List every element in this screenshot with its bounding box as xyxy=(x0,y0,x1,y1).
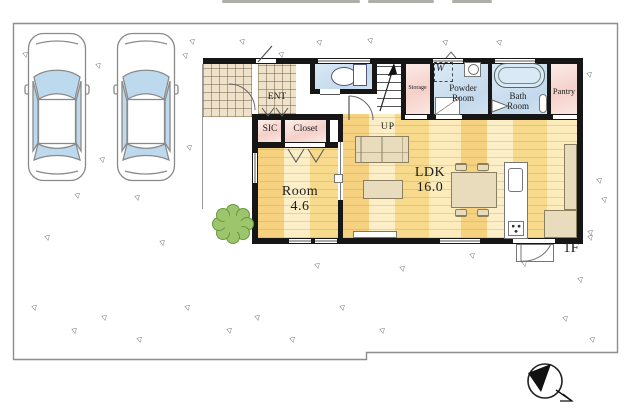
powder-door xyxy=(436,115,462,119)
stair-tread xyxy=(377,74,402,75)
sic-label: SIC xyxy=(258,124,282,134)
dining-chair xyxy=(477,209,489,217)
stair-tread xyxy=(377,90,402,91)
grass-mark: ▽ xyxy=(314,263,321,271)
grass-mark: ▽ xyxy=(44,235,51,243)
pantry-door xyxy=(553,115,577,119)
back-door xyxy=(516,244,554,262)
grass-mark: ▽ xyxy=(586,72,593,80)
entrance-floor xyxy=(258,64,296,114)
grass-mark: ▽ xyxy=(159,240,166,248)
room-window-1 xyxy=(289,239,311,243)
storage-label: Storage xyxy=(400,85,435,92)
up-label: UP xyxy=(373,122,403,132)
room-name: Room xyxy=(275,184,325,199)
grass-mark: ▽ xyxy=(71,328,78,336)
stairs-wall-left xyxy=(372,58,377,94)
ent-label: ENT xyxy=(259,92,295,102)
grass-mark: ▽ xyxy=(496,40,503,48)
powder-sink-basin xyxy=(468,64,479,75)
closet-opening xyxy=(285,143,325,147)
grass-mark: ▽ xyxy=(601,197,608,205)
kitchen-stove xyxy=(508,221,524,236)
ldk-name: LDK xyxy=(405,165,455,180)
ldk-back-door-opening xyxy=(513,239,555,243)
dining-chair xyxy=(455,163,467,171)
grass-mark: ▽ xyxy=(186,145,193,153)
grass-mark: ▽ xyxy=(399,266,406,274)
grass-mark: ▽ xyxy=(134,195,141,203)
grass-mark: ▽ xyxy=(101,315,108,323)
entrance-door-opening xyxy=(256,59,276,63)
grass-mark: ▽ xyxy=(367,38,374,46)
cropped-title-fragment xyxy=(368,0,434,3)
exterior-wall-right xyxy=(577,58,583,244)
room-size: 4.6 xyxy=(275,199,325,214)
pantry-label: Pantry xyxy=(546,87,582,96)
stair-tread xyxy=(377,66,402,67)
kitchen-sink xyxy=(508,168,523,192)
sliding-door-handle xyxy=(334,174,343,183)
grass-mark: ▽ xyxy=(587,235,594,243)
floor-plan-canvas: ▽▽▽▽▽▽▽▽▽▽▽▽▽▽▽▽▽▽▽▽▽▽▽▽▽▽▽▽▽▽▽▽▽▽▽▽▽▽▽▽ xyxy=(0,0,631,409)
storage-door xyxy=(405,115,427,119)
grass-mark: ▽ xyxy=(95,63,102,71)
car-1 xyxy=(24,31,90,183)
grass-mark: ▽ xyxy=(189,39,196,47)
floor-label: 1F xyxy=(556,240,586,257)
grass-mark: ▽ xyxy=(587,230,594,238)
grass-mark: ▽ xyxy=(379,328,386,336)
grass-mark: ▽ xyxy=(136,337,143,345)
grass-mark: ▽ xyxy=(182,53,189,61)
bathtub xyxy=(494,63,545,88)
stair-tread xyxy=(377,106,402,107)
grass-mark: ▽ xyxy=(316,40,323,48)
powder-room-label: Powder Room xyxy=(441,84,485,104)
room-ldk-sliding-door xyxy=(338,142,343,200)
stair-tread xyxy=(377,82,402,83)
ldk-label: LDK 16.0 xyxy=(405,165,455,196)
grass-mark: ▽ xyxy=(74,193,81,201)
room-window-2 xyxy=(315,239,337,243)
compass-icon xyxy=(528,364,572,401)
bath-counter xyxy=(539,94,547,113)
grass-mark: ▽ xyxy=(562,316,569,324)
grass-mark: ▽ xyxy=(442,40,449,48)
grass-mark: ▽ xyxy=(289,337,296,345)
porch-tile-floor xyxy=(203,64,252,117)
dining-chair xyxy=(477,163,489,171)
coffee-table xyxy=(363,180,403,199)
house-footprint: W ENT SIC Closet UP Storage Powder Room … xyxy=(203,58,583,244)
room-label: Room 4.6 xyxy=(275,184,325,215)
dining-chair xyxy=(455,209,467,217)
bath-room-label: Bath Room xyxy=(500,92,536,112)
cropped-title-fragment xyxy=(222,0,360,3)
grass-mark: ▽ xyxy=(577,277,584,285)
tv-board xyxy=(353,231,397,238)
grass-mark: ▽ xyxy=(226,328,233,336)
sofa xyxy=(355,136,409,163)
grass-mark: ▽ xyxy=(99,157,106,165)
dining-table xyxy=(451,172,497,208)
grass-mark: ▽ xyxy=(589,337,596,345)
grass-mark: ▽ xyxy=(254,315,261,323)
toilet-tank xyxy=(353,64,367,86)
toilet-window xyxy=(318,59,370,63)
toilet-door xyxy=(320,89,340,95)
powder-wall-right xyxy=(488,58,492,119)
refrigerator xyxy=(544,210,577,238)
ldk-size: 16.0 xyxy=(405,180,455,195)
room-side-window xyxy=(253,153,257,183)
grass-mark: ▽ xyxy=(239,39,246,47)
ldk-window xyxy=(440,239,480,243)
closet-label: Closet xyxy=(284,124,327,134)
kitchen-cupboard xyxy=(564,144,577,210)
grass-mark: ▽ xyxy=(31,305,38,313)
washer-label: W xyxy=(436,63,444,74)
grass-mark: ▽ xyxy=(339,305,346,313)
grass-mark: ▽ xyxy=(596,178,603,186)
car-2 xyxy=(113,31,179,183)
grass-mark: ▽ xyxy=(469,253,476,261)
grass-mark: ▽ xyxy=(184,305,191,313)
stair-tread xyxy=(377,98,402,99)
cropped-title-fragment xyxy=(452,0,492,3)
